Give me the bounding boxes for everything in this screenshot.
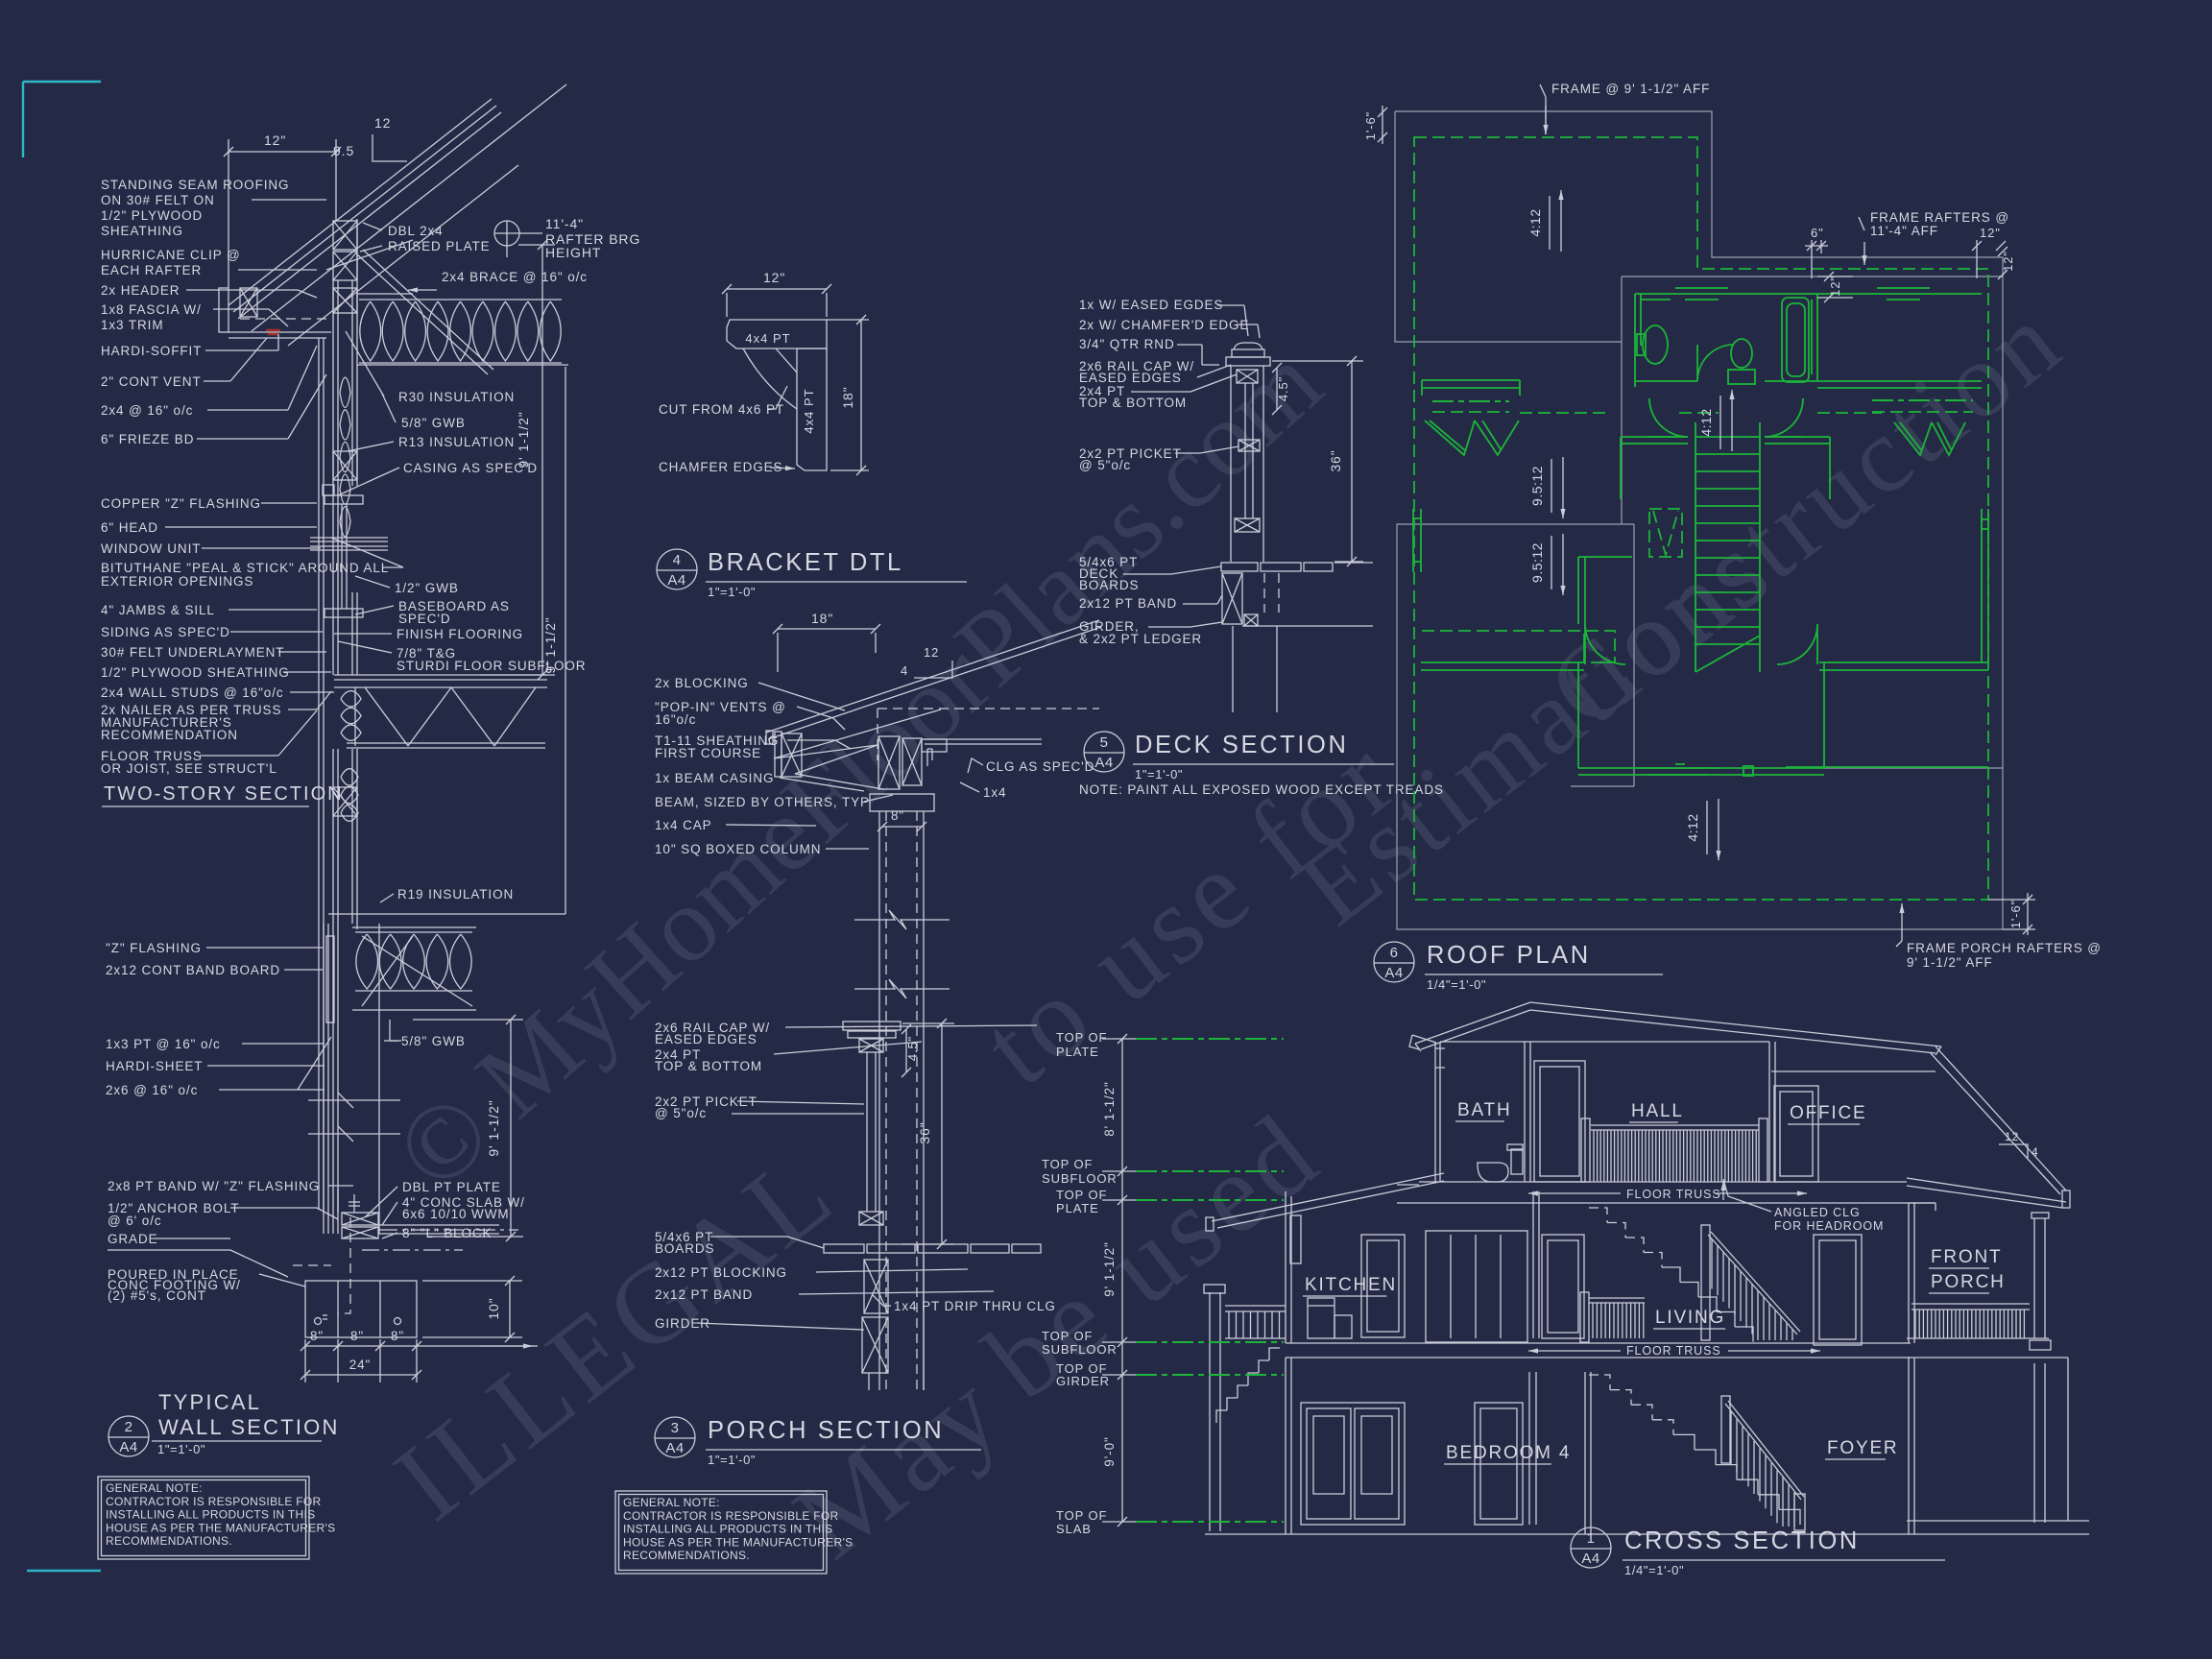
svg-text:1/2" GWB: 1/2" GWB bbox=[395, 581, 459, 595]
svg-text:36": 36" bbox=[917, 1121, 932, 1143]
svg-text:SUBFLOOR: SUBFLOOR bbox=[1042, 1171, 1118, 1186]
svg-text:ON 30# FELT ON: ON 30# FELT ON bbox=[101, 193, 215, 207]
svg-text:TOP OF: TOP OF bbox=[1056, 1030, 1107, 1045]
svg-text:4: 4 bbox=[901, 663, 908, 678]
svg-text:SHEATHING: SHEATHING bbox=[101, 224, 183, 238]
svg-text:CONTRACTOR IS RESPONSIBLE FOR: CONTRACTOR IS RESPONSIBLE FOR bbox=[106, 1495, 322, 1508]
svg-text:1x W/ EASED EGDES: 1x W/ EASED EGDES bbox=[1079, 298, 1223, 312]
svg-text:ROOF PLAN: ROOF PLAN bbox=[1427, 942, 1591, 969]
svg-text:1x BEAM CASING: 1x BEAM CASING bbox=[655, 771, 774, 785]
svg-text:2x BLOCKING: 2x BLOCKING bbox=[655, 676, 749, 690]
svg-text:WINDOW UNIT: WINDOW UNIT bbox=[101, 541, 201, 556]
svg-text:1x4: 1x4 bbox=[983, 785, 1006, 800]
svg-text:TYPICAL: TYPICAL bbox=[158, 1390, 261, 1414]
svg-text:SPEC'D: SPEC'D bbox=[398, 612, 451, 626]
svg-text:1'-6": 1'-6" bbox=[1363, 111, 1378, 140]
svg-text:FRAME PORCH RAFTERS @: FRAME PORCH RAFTERS @ bbox=[1907, 941, 2102, 955]
svg-text:R13 INSULATION: R13 INSULATION bbox=[398, 435, 515, 449]
svg-text:5/8" GWB: 5/8" GWB bbox=[401, 416, 466, 430]
svg-text:COPPER "Z" FLASHING: COPPER "Z" FLASHING bbox=[101, 496, 261, 511]
svg-text:1x3 PT @ 16" o/c: 1x3 PT @ 16" o/c bbox=[106, 1037, 221, 1051]
svg-text:HOUSE AS PER THE MANUFACTURER': HOUSE AS PER THE MANUFACTURER'S bbox=[106, 1521, 335, 1534]
svg-text:HARDI-SOFFIT: HARDI-SOFFIT bbox=[101, 344, 202, 358]
svg-text:BRACKET DTL: BRACKET DTL bbox=[708, 549, 903, 576]
svg-text:4x4 PT: 4x4 PT bbox=[745, 331, 790, 346]
svg-text:4.5": 4.5" bbox=[905, 1036, 920, 1061]
svg-text:8" "L" BLOCK: 8" "L" BLOCK bbox=[402, 1226, 492, 1240]
svg-text:R30 INSULATION: R30 INSULATION bbox=[398, 390, 515, 404]
svg-text:2x W/ CHAMFER'D EDGE: 2x W/ CHAMFER'D EDGE bbox=[1079, 318, 1249, 332]
svg-text:1x4 CAP: 1x4 CAP bbox=[655, 818, 712, 832]
svg-text:9' 1-1/2": 9' 1-1/2" bbox=[486, 1099, 501, 1156]
svg-text:A4: A4 bbox=[1581, 1551, 1599, 1567]
svg-text:8": 8" bbox=[310, 1329, 324, 1343]
svg-text:CHAMFER EDGES: CHAMFER EDGES bbox=[659, 460, 782, 474]
svg-text:12: 12 bbox=[2005, 1130, 2019, 1143]
svg-text:2: 2 bbox=[125, 1419, 133, 1435]
svg-text:3: 3 bbox=[671, 1420, 680, 1436]
svg-text:1/2" PLYWOOD: 1/2" PLYWOOD bbox=[101, 208, 203, 223]
svg-text:4: 4 bbox=[673, 552, 682, 568]
svg-text:9.5:12: 9.5:12 bbox=[1529, 466, 1545, 506]
svg-text:12": 12" bbox=[1828, 276, 1842, 297]
svg-text:BEAM, SIZED BY OTHERS, TYP: BEAM, SIZED BY OTHERS, TYP bbox=[655, 795, 870, 809]
svg-text:LIVING: LIVING bbox=[1655, 1308, 1725, 1328]
svg-text:CONTRACTOR IS RESPONSIBLE FOR: CONTRACTOR IS RESPONSIBLE FOR bbox=[623, 1509, 839, 1523]
svg-text:FRONT: FRONT bbox=[1931, 1247, 2002, 1267]
svg-text:12": 12" bbox=[763, 270, 785, 285]
svg-text:2x12 CONT BAND BOARD: 2x12 CONT BAND BOARD bbox=[106, 963, 280, 977]
svg-text:4.5": 4.5" bbox=[1276, 376, 1290, 401]
svg-text:36": 36" bbox=[1328, 449, 1343, 471]
svg-text:DBL 2x4: DBL 2x4 bbox=[388, 224, 444, 238]
svg-text:4:12: 4:12 bbox=[1698, 408, 1714, 436]
svg-text:10": 10" bbox=[486, 1297, 501, 1319]
svg-text:8": 8" bbox=[350, 1329, 364, 1343]
svg-text:BEDROOM 4: BEDROOM 4 bbox=[1446, 1443, 1571, 1463]
svg-text:1"=1'-0": 1"=1'-0" bbox=[708, 1453, 756, 1467]
svg-text:30# FELT UNDERLAYMENT: 30# FELT UNDERLAYMENT bbox=[101, 645, 284, 660]
svg-text:1x3 TRIM: 1x3 TRIM bbox=[101, 318, 163, 332]
svg-text:2x HEADER: 2x HEADER bbox=[101, 283, 180, 298]
svg-text:GENERAL NOTE:: GENERAL NOTE: bbox=[623, 1496, 720, 1509]
svg-text:SUBFLOOR: SUBFLOOR bbox=[1042, 1342, 1118, 1357]
svg-text:DBL PT PLATE: DBL PT PLATE bbox=[402, 1180, 501, 1194]
svg-text:PLATE: PLATE bbox=[1056, 1201, 1099, 1215]
svg-text:11'-4": 11'-4" bbox=[545, 216, 584, 231]
svg-text:TOP OF: TOP OF bbox=[1056, 1188, 1107, 1202]
svg-text:2" CONT VENT: 2" CONT VENT bbox=[101, 374, 202, 389]
svg-text:TOP OF: TOP OF bbox=[1056, 1508, 1107, 1523]
svg-text:(2) #5's, CONT: (2) #5's, CONT bbox=[108, 1288, 206, 1303]
svg-text:SIDING AS SPEC'D: SIDING AS SPEC'D bbox=[101, 625, 230, 639]
svg-text:HARDI-SHEET: HARDI-SHEET bbox=[106, 1059, 203, 1073]
svg-text:BOARDS: BOARDS bbox=[1079, 578, 1139, 592]
svg-text:12": 12" bbox=[264, 132, 286, 148]
svg-text:18": 18" bbox=[811, 611, 833, 626]
svg-text:RECOMMENDATION: RECOMMENDATION bbox=[101, 728, 238, 742]
svg-text:6" HEAD: 6" HEAD bbox=[101, 520, 158, 535]
svg-text:4" JAMBS & SILL: 4" JAMBS & SILL bbox=[101, 603, 215, 617]
svg-text:4:12: 4:12 bbox=[1527, 208, 1543, 236]
svg-text:3/4" QTR RND: 3/4" QTR RND bbox=[1079, 337, 1175, 351]
svg-text:EASED EDGES: EASED EDGES bbox=[655, 1032, 757, 1046]
svg-text:CASING AS SPEC'D: CASING AS SPEC'D bbox=[403, 461, 538, 475]
svg-text:TOP & BOTTOM: TOP & BOTTOM bbox=[1079, 396, 1187, 410]
svg-text:A4: A4 bbox=[667, 572, 685, 589]
svg-text:4:12: 4:12 bbox=[1685, 813, 1700, 841]
svg-text:A4: A4 bbox=[119, 1439, 137, 1455]
svg-text:2x12 PT BAND: 2x12 PT BAND bbox=[1079, 596, 1177, 611]
svg-text:2x12 PT BAND: 2x12 PT BAND bbox=[655, 1287, 753, 1302]
svg-text:1: 1 bbox=[1587, 1530, 1596, 1547]
svg-text:2x4 BRACE @ 16" o/c: 2x4 BRACE @ 16" o/c bbox=[442, 270, 588, 284]
svg-text:PORCH: PORCH bbox=[1931, 1272, 2006, 1292]
svg-text:9.5: 9.5 bbox=[333, 143, 354, 158]
svg-text:SLAB: SLAB bbox=[1056, 1522, 1092, 1536]
svg-text:1"=1'-0": 1"=1'-0" bbox=[708, 585, 756, 599]
svg-text:HEIGHT: HEIGHT bbox=[545, 245, 601, 260]
svg-text:10" SQ BOXED COLUMN: 10" SQ BOXED COLUMN bbox=[655, 842, 821, 856]
svg-text:2x6 @ 16" o/c: 2x6 @ 16" o/c bbox=[106, 1083, 198, 1097]
svg-text:6x6 10/10 WWM: 6x6 10/10 WWM bbox=[402, 1207, 509, 1221]
svg-text:24": 24" bbox=[349, 1358, 372, 1372]
svg-text:9.5:12: 9.5:12 bbox=[1529, 542, 1545, 583]
svg-text:HURRICANE CLIP @: HURRICANE CLIP @ bbox=[101, 248, 241, 262]
svg-text:HALL: HALL bbox=[1631, 1101, 1684, 1121]
svg-text:WALL SECTION: WALL SECTION bbox=[158, 1415, 340, 1439]
svg-text:1/2" PLYWOOD SHEATHING: 1/2" PLYWOOD SHEATHING bbox=[101, 665, 290, 680]
svg-text:18": 18" bbox=[840, 386, 855, 408]
svg-text:GIRDER: GIRDER bbox=[1056, 1374, 1110, 1388]
svg-text:@ 5"o/c: @ 5"o/c bbox=[655, 1106, 707, 1120]
svg-text:OFFICE: OFFICE bbox=[1790, 1103, 1866, 1123]
svg-text:FRAME RAFTERS @: FRAME RAFTERS @ bbox=[1870, 210, 2009, 225]
svg-text:TWO-STORY SECTION: TWO-STORY SECTION bbox=[104, 783, 344, 805]
svg-text:9' 1-1/2" AFF: 9' 1-1/2" AFF bbox=[1907, 955, 1993, 970]
svg-text:1/4"=1'-0": 1/4"=1'-0" bbox=[1624, 1563, 1684, 1577]
svg-text:1x4 PT DRIP THRU CLG: 1x4 PT DRIP THRU CLG bbox=[894, 1299, 1056, 1313]
svg-text:8' 1-1/2": 8' 1-1/2" bbox=[1102, 1081, 1117, 1137]
svg-text:6" FRIEZE BD: 6" FRIEZE BD bbox=[101, 432, 194, 446]
svg-text:FLOOR TRUSS: FLOOR TRUSS bbox=[1626, 1188, 1721, 1201]
svg-text:1x8 FASCIA W/: 1x8 FASCIA W/ bbox=[101, 302, 202, 317]
svg-text:8": 8" bbox=[391, 1329, 404, 1343]
svg-text:STURDI FLOOR SUBFLOOR: STURDI FLOOR SUBFLOOR bbox=[397, 659, 586, 673]
svg-text:5/8" GWB: 5/8" GWB bbox=[401, 1034, 466, 1048]
svg-text:4: 4 bbox=[2032, 1145, 2039, 1159]
svg-text:9' 1-1/2": 9' 1-1/2" bbox=[1102, 1241, 1117, 1297]
svg-text:FIRST COURSE: FIRST COURSE bbox=[655, 746, 761, 760]
svg-text:FLOOR TRUSS: FLOOR TRUSS bbox=[1626, 1344, 1721, 1358]
svg-text:FOYER: FOYER bbox=[1827, 1438, 1898, 1458]
svg-text:2x8 PT BAND W/ "Z" FLASHING: 2x8 PT BAND W/ "Z" FLASHING bbox=[108, 1179, 320, 1193]
svg-text:NOTE: PAINT ALL EXPOSED WOOD E: NOTE: PAINT ALL EXPOSED WOOD EXCEPT TREA… bbox=[1079, 782, 1444, 797]
svg-text:12: 12 bbox=[374, 115, 391, 131]
svg-text:A4: A4 bbox=[1384, 965, 1403, 981]
svg-text:R19 INSULATION: R19 INSULATION bbox=[397, 887, 514, 902]
svg-text:FRAME @ 9' 1-1/2" AFF: FRAME @ 9' 1-1/2" AFF bbox=[1551, 82, 1710, 96]
svg-text:4x4 PT: 4x4 PT bbox=[802, 388, 816, 433]
svg-text:INSTALLING ALL PRODUCTS IN THI: INSTALLING ALL PRODUCTS IN THIS bbox=[106, 1508, 315, 1522]
svg-text:BOARDS: BOARDS bbox=[655, 1241, 714, 1256]
svg-text:GRADE: GRADE bbox=[108, 1232, 158, 1246]
svg-text:@ 6' o/c: @ 6' o/c bbox=[108, 1214, 162, 1228]
svg-text:6: 6 bbox=[1390, 945, 1399, 961]
svg-text:& 2x2 PT LEDGER: & 2x2 PT LEDGER bbox=[1079, 632, 1202, 646]
svg-text:8": 8" bbox=[891, 808, 904, 823]
svg-text:9' 1-1/2": 9' 1-1/2" bbox=[516, 411, 531, 468]
svg-text:EASED EDGES: EASED EDGES bbox=[1079, 371, 1182, 385]
svg-text:RAISED PLATE: RAISED PLATE bbox=[388, 239, 491, 253]
svg-text:16"o/c: 16"o/c bbox=[655, 712, 696, 727]
svg-text:12: 12 bbox=[924, 645, 939, 660]
svg-text:FINISH FLOORING: FINISH FLOORING bbox=[397, 627, 523, 641]
svg-text:ANGLED CLG: ANGLED CLG bbox=[1774, 1206, 1861, 1219]
svg-text:1"=1'-0": 1"=1'-0" bbox=[157, 1442, 205, 1456]
svg-text:1'-6": 1'-6" bbox=[2008, 900, 2023, 928]
svg-text:9'-0": 9'-0" bbox=[1102, 1436, 1117, 1466]
svg-text:11'-4" AFF: 11'-4" AFF bbox=[1870, 224, 1938, 238]
svg-text:EACH RAFTER: EACH RAFTER bbox=[101, 263, 202, 277]
svg-text:2x4 WALL STUDS @ 16"o/c: 2x4 WALL STUDS @ 16"o/c bbox=[101, 685, 284, 700]
svg-text:PLATE: PLATE bbox=[1056, 1045, 1099, 1059]
svg-text:CLG AS SPEC'D: CLG AS SPEC'D bbox=[986, 759, 1094, 774]
svg-text:1/4"=1'-0": 1/4"=1'-0" bbox=[1427, 977, 1486, 992]
svg-text:RECOMMENDATIONS.: RECOMMENDATIONS. bbox=[106, 1534, 232, 1548]
svg-text:OR JOIST, SEE STRUCT'L: OR JOIST, SEE STRUCT'L bbox=[101, 761, 277, 776]
svg-text:12": 12" bbox=[2001, 251, 2015, 272]
svg-text:6": 6" bbox=[1811, 226, 1824, 240]
svg-text:BITUTHANE "PEAL & STICK" AROUN: BITUTHANE "PEAL & STICK" AROUND ALL bbox=[101, 561, 389, 575]
svg-text:DECK SECTION: DECK SECTION bbox=[1135, 732, 1348, 758]
svg-text:TOP OF: TOP OF bbox=[1042, 1157, 1093, 1171]
svg-text:EXTERIOR OPENINGS: EXTERIOR OPENINGS bbox=[101, 574, 253, 589]
svg-text:CROSS SECTION: CROSS SECTION bbox=[1624, 1527, 1860, 1554]
svg-text:A4: A4 bbox=[665, 1440, 684, 1456]
svg-text:PORCH SECTION: PORCH SECTION bbox=[708, 1417, 944, 1444]
svg-text:2x4 @ 16" o/c: 2x4 @ 16" o/c bbox=[101, 403, 193, 418]
svg-text:1"=1'-0": 1"=1'-0" bbox=[1135, 767, 1183, 781]
svg-text:2x12 PT BLOCKING: 2x12 PT BLOCKING bbox=[655, 1265, 787, 1280]
svg-text:RECOMMENDATIONS.: RECOMMENDATIONS. bbox=[623, 1549, 750, 1562]
svg-text:5: 5 bbox=[1100, 734, 1109, 751]
svg-text:12": 12" bbox=[1980, 226, 2001, 240]
svg-text:GENERAL NOTE:: GENERAL NOTE: bbox=[106, 1481, 203, 1495]
svg-text:CUT FROM 4x6 PT: CUT FROM 4x6 PT bbox=[659, 402, 784, 417]
svg-text:TOP & BOTTOM: TOP & BOTTOM bbox=[655, 1059, 762, 1073]
svg-text:FOR HEADROOM: FOR HEADROOM bbox=[1774, 1219, 1884, 1233]
svg-text:INSTALLING ALL PRODUCTS IN THI: INSTALLING ALL PRODUCTS IN THIS bbox=[623, 1523, 832, 1536]
svg-text:TOP OF: TOP OF bbox=[1042, 1329, 1093, 1343]
svg-text:STANDING SEAM ROOFING: STANDING SEAM ROOFING bbox=[101, 178, 289, 192]
svg-text:KITCHEN: KITCHEN bbox=[1305, 1275, 1397, 1295]
svg-text:HOUSE AS PER THE MANUFACTURER': HOUSE AS PER THE MANUFACTURER'S bbox=[623, 1535, 853, 1549]
svg-text:"Z" FLASHING: "Z" FLASHING bbox=[106, 941, 202, 955]
svg-text:BATH: BATH bbox=[1457, 1100, 1511, 1120]
svg-text:@ 5"o/c: @ 5"o/c bbox=[1079, 458, 1131, 472]
svg-text:A4: A4 bbox=[1094, 755, 1113, 771]
